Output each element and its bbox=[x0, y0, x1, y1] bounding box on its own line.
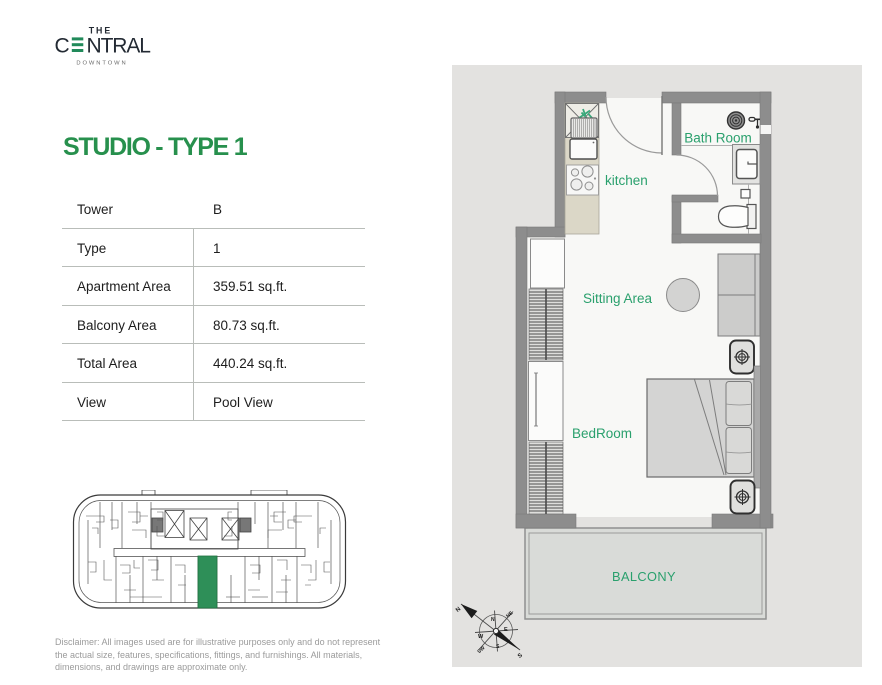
svg-text:BALCONY: BALCONY bbox=[612, 569, 676, 584]
svg-text:C: C bbox=[55, 34, 70, 57]
svg-text:E: E bbox=[504, 627, 508, 633]
svg-text:NTRAL: NTRAL bbox=[87, 34, 151, 57]
svg-text:Sitting Area: Sitting Area bbox=[583, 291, 653, 306]
svg-text:DOWNTOWN: DOWNTOWN bbox=[76, 60, 127, 66]
svg-text:kitchen: kitchen bbox=[605, 173, 648, 188]
svg-text:Bath Room: Bath Room bbox=[684, 131, 752, 146]
svg-text:BedRoom: BedRoom bbox=[572, 426, 632, 441]
svg-text:W: W bbox=[478, 634, 484, 640]
svg-text:N: N bbox=[491, 617, 495, 623]
